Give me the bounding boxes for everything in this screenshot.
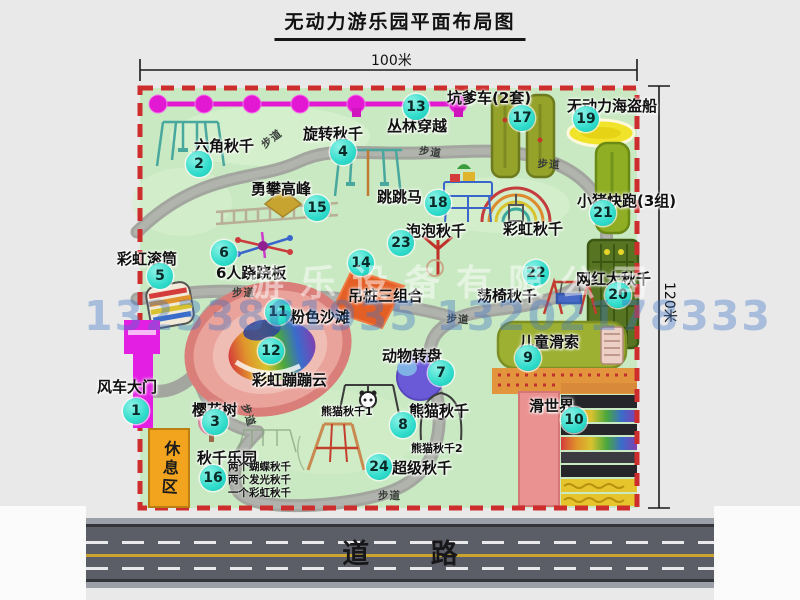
page-margin: [714, 506, 800, 600]
road: 道 路: [86, 518, 714, 588]
panda-swing-2-label: 熊猫秋千2: [411, 440, 463, 456]
footpath-label: 步道: [378, 488, 401, 503]
facility-2-badge: 2: [186, 151, 212, 177]
width-dimension-label: 100米: [371, 50, 412, 70]
footpath-label: 步道: [537, 156, 561, 173]
facility-1-badge: 1: [123, 398, 149, 424]
facility-18-label: 跳跳马: [377, 186, 422, 207]
facility-8-label: 熊猫秋千: [409, 400, 469, 421]
facility-3-badge: 3: [202, 409, 228, 435]
facility-19-badge: 19: [573, 106, 599, 132]
facility-9-badge: 9: [515, 345, 541, 371]
facility-5-badge: 5: [147, 263, 173, 289]
page-margin: [0, 506, 86, 600]
rest-area: 休息区: [148, 428, 190, 508]
road-label: 道 路: [316, 532, 483, 571]
facility-6-badge: 6: [211, 240, 237, 266]
facility-4-badge: 4: [330, 139, 356, 165]
panda-swing-1-label: 熊猫秋千1: [321, 403, 373, 419]
page-title: 无动力游乐园平面布局图: [274, 7, 525, 41]
facility-8-badge: 8: [390, 412, 416, 438]
facility-13-badge: 13: [403, 94, 429, 120]
facility-10-badge: 10: [561, 407, 587, 433]
road-shoulder: [86, 582, 714, 588]
swing-park-detail-item: 一个彩虹秋千: [228, 487, 291, 500]
facility-21-badge: 21: [590, 200, 616, 226]
facility-4-label: 旋转秋千: [303, 123, 363, 144]
swing-park-detail-list: 两个蝴蝶秋千 两个发光秋千 一个彩虹秋千: [228, 461, 291, 500]
facility-15-badge: 15: [304, 195, 330, 221]
swing-park-detail-item: 两个发光秋千: [228, 474, 291, 487]
watermark-phone: 13233861935 13202178333: [84, 292, 772, 340]
rainbow-swing-label: 彩虹秋千: [503, 218, 563, 239]
facility-1-label: 风车大门: [97, 376, 157, 397]
facility-16-badge: 16: [200, 465, 226, 491]
footpath-label: 步道: [418, 143, 443, 161]
facility-24-label: 超级秋千: [392, 457, 452, 478]
facility-12-badge: 12: [258, 338, 284, 364]
facility-12-label: 彩虹蹦蹦云: [252, 369, 327, 390]
rest-area-label: 休息区: [155, 439, 183, 498]
facility-24-badge: 24: [366, 454, 392, 480]
facility-7-badge: 7: [428, 360, 454, 386]
facility-18-badge: 18: [425, 190, 451, 216]
facility-15-label: 勇攀高峰: [251, 178, 311, 199]
facility-17-badge: 17: [509, 105, 535, 131]
facility-23-label: 泡泡秋千: [406, 220, 466, 241]
park-layout-page: 无动力游乐园平面布局图 100米 120米 步道 步道 步道 步道 步道 步道 …: [0, 0, 800, 600]
swing-park-detail-item: 两个蝴蝶秋千: [228, 461, 291, 474]
facility-23-badge: 23: [388, 230, 414, 256]
